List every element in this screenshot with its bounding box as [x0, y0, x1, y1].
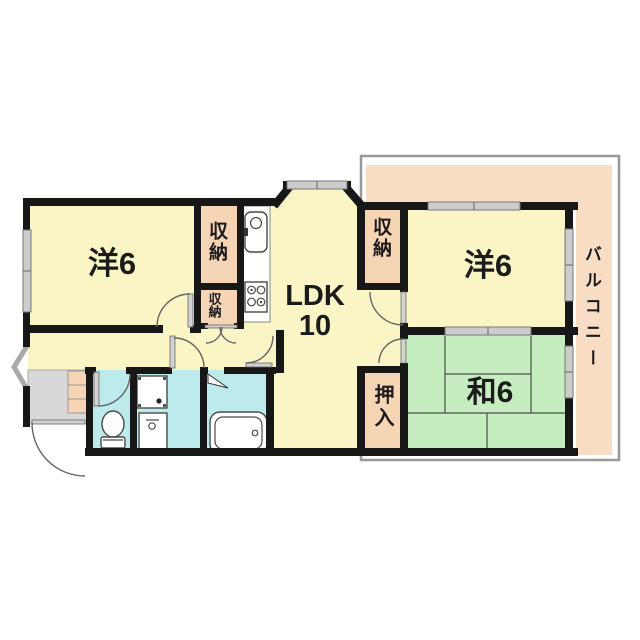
- kitchen-counter: [241, 206, 270, 322]
- oshiire-label: 押入: [371, 384, 392, 448]
- balcony-label: バルコニー: [582, 245, 600, 415]
- room-japanese-label: 和6: [440, 377, 540, 409]
- vanity-sink-icon: [139, 413, 167, 451]
- ldk-label: LDK 10: [270, 281, 360, 342]
- ldk-size-text: 10: [270, 311, 360, 341]
- kitchen-sink-icon: [243, 212, 267, 252]
- balcony-floor-top: [366, 165, 612, 205]
- closet-east-label: 収納: [370, 217, 390, 287]
- shoe-cabinet-icon: [68, 371, 89, 413]
- closet-hall-label: 収納: [207, 292, 221, 328]
- toilet-icon: [101, 411, 125, 448]
- bathtub-icon: [210, 412, 267, 454]
- ldk-lower-floor: [272, 330, 364, 452]
- room-western-right-label: 洋6: [428, 250, 548, 283]
- hallway-floor: [28, 328, 278, 370]
- washing-machine-icon: [137, 376, 167, 408]
- ldk-label-text: LDK: [270, 281, 360, 311]
- room-western-left-label: 洋6: [52, 248, 172, 281]
- closet-upper-label: 収納: [206, 221, 226, 291]
- passage-floor: [361, 288, 406, 368]
- floor-plan: 洋6 収納 収納 LDK 10 収納 洋6 和6 押入 バルコニー: [0, 0, 640, 640]
- stove-icon: [245, 282, 267, 312]
